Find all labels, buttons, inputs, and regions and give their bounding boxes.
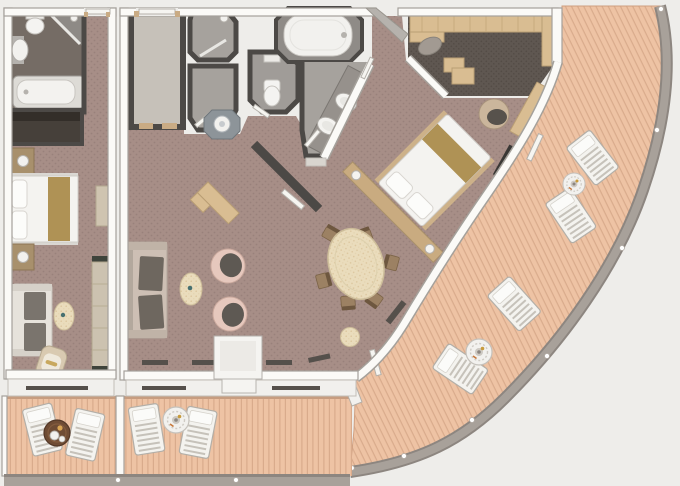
balcony-side-wall — [2, 396, 7, 476]
pillow — [12, 180, 27, 208]
bath-rug — [306, 158, 326, 166]
guest-balcony — [2, 396, 116, 476]
sofa-armrest — [12, 284, 52, 291]
lamp — [18, 252, 29, 263]
pouf — [341, 328, 360, 347]
balcony-divider — [116, 396, 124, 476]
basin — [12, 39, 28, 61]
living-balcony-table — [163, 407, 189, 433]
guest-wall-right — [108, 8, 116, 379]
sliding-door-track — [26, 386, 88, 390]
living-balcony — [124, 396, 352, 476]
powder-room — [190, 66, 240, 139]
wall-right-stub — [552, 8, 562, 64]
sofa-cushion — [138, 294, 164, 330]
guest-wall-bottom — [6, 370, 116, 379]
guest-closet — [10, 110, 82, 144]
closet-wall-top — [398, 8, 558, 16]
sliding-door-track — [272, 386, 320, 390]
veranda-table-mid — [466, 339, 492, 365]
bottom-railing — [4, 474, 350, 486]
walk-in-closet — [408, 14, 556, 96]
bed-runner — [48, 177, 70, 241]
pillow — [12, 211, 27, 239]
window-sill — [142, 360, 168, 365]
threshold — [139, 123, 153, 129]
tub-drain — [24, 90, 29, 95]
door-jamb — [175, 11, 180, 17]
toilet — [26, 18, 44, 34]
alcove-inner — [220, 341, 256, 371]
table-decor — [188, 286, 193, 291]
entry-door — [139, 9, 175, 14]
guest-cafe-table — [44, 420, 70, 446]
sofa-cushion — [24, 292, 46, 320]
door-jamb — [134, 11, 139, 17]
foyer-floor — [134, 14, 180, 124]
basin-drain — [219, 121, 225, 127]
main-wall-left — [120, 8, 128, 380]
balcony-step — [222, 379, 256, 393]
tub-faucet — [341, 32, 347, 38]
veranda-table-top — [563, 173, 585, 195]
lamp — [18, 156, 29, 167]
sofa-cushion — [138, 256, 164, 291]
guest-suite — [4, 8, 116, 396]
guest-wall-left — [4, 8, 12, 379]
sliding-door-track — [142, 386, 186, 390]
toilet-tank — [264, 55, 280, 62]
sofa-armrest — [124, 330, 167, 338]
suite-floorplan: Two-bedroom suite floor plan with curved… — [0, 0, 680, 486]
door-jamb — [84, 12, 88, 17]
guest-bathroom — [10, 10, 85, 112]
closet-shelf — [12, 112, 80, 121]
dresser-step-2 — [452, 68, 474, 84]
sofa-cushion — [24, 323, 46, 351]
door-jamb — [106, 12, 110, 17]
window-sill — [266, 360, 292, 365]
threshold — [162, 123, 177, 129]
closet-shelf-top — [410, 16, 554, 32]
shower-floor — [190, 12, 236, 60]
foyer — [131, 11, 183, 129]
table-decor — [61, 313, 65, 317]
toilet — [264, 86, 280, 106]
console — [92, 262, 110, 368]
shower-room — [190, 12, 236, 60]
sofa-armrest — [124, 242, 167, 250]
floorplan-canvas: Two-bedroom suite floor plan with curved… — [0, 0, 680, 486]
desk-chair-seat — [487, 109, 507, 125]
